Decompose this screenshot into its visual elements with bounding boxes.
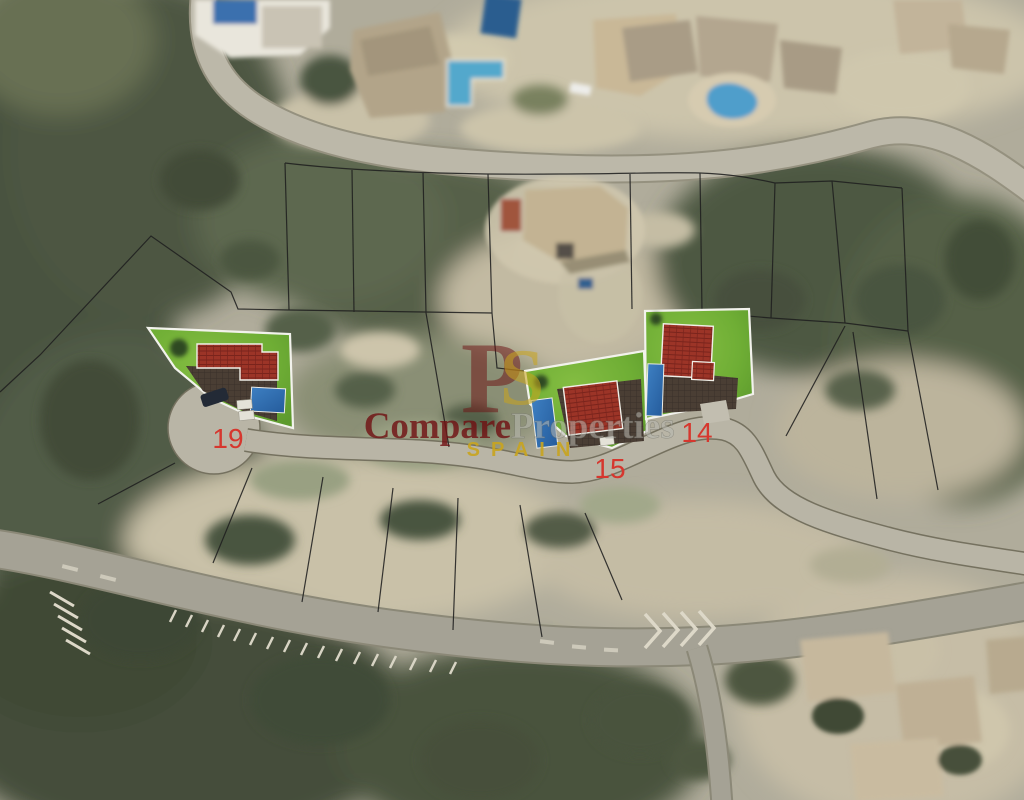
plot-14-label: 14 [681, 417, 712, 448]
villa-14-roof-annex [692, 361, 715, 380]
plot-19-label: 19 [212, 423, 243, 454]
plot-14-tree [650, 313, 662, 325]
neighbour-house-c1 [622, 20, 698, 82]
aerial-site-plan: 19 15 14 P S Compare Properties SPAIN [0, 0, 1024, 800]
neighbour-house-c2 [696, 16, 778, 82]
existing-house-pool-icon [578, 278, 593, 289]
watermark-country: SPAIN [467, 439, 582, 461]
villa-19-pool-icon [250, 387, 285, 413]
neighbour-pool-2-icon [480, 0, 521, 38]
neighbour-house-e2 [896, 676, 982, 750]
neighbour-pool-1-icon [213, 0, 257, 24]
neighbour-house-e4 [986, 636, 1024, 694]
neighbour-house-c3 [780, 40, 842, 94]
plot-15-label: 15 [594, 453, 625, 484]
existing-house-court [500, 198, 522, 232]
plot-19-tree [170, 339, 188, 357]
site-plan-canvas: 19 15 14 P S Compare Properties SPAIN [0, 0, 1024, 800]
neighbour-house-e3 [850, 738, 944, 800]
neighbour-house-d2 [948, 24, 1010, 74]
neighbour-house-e1 [800, 632, 896, 702]
